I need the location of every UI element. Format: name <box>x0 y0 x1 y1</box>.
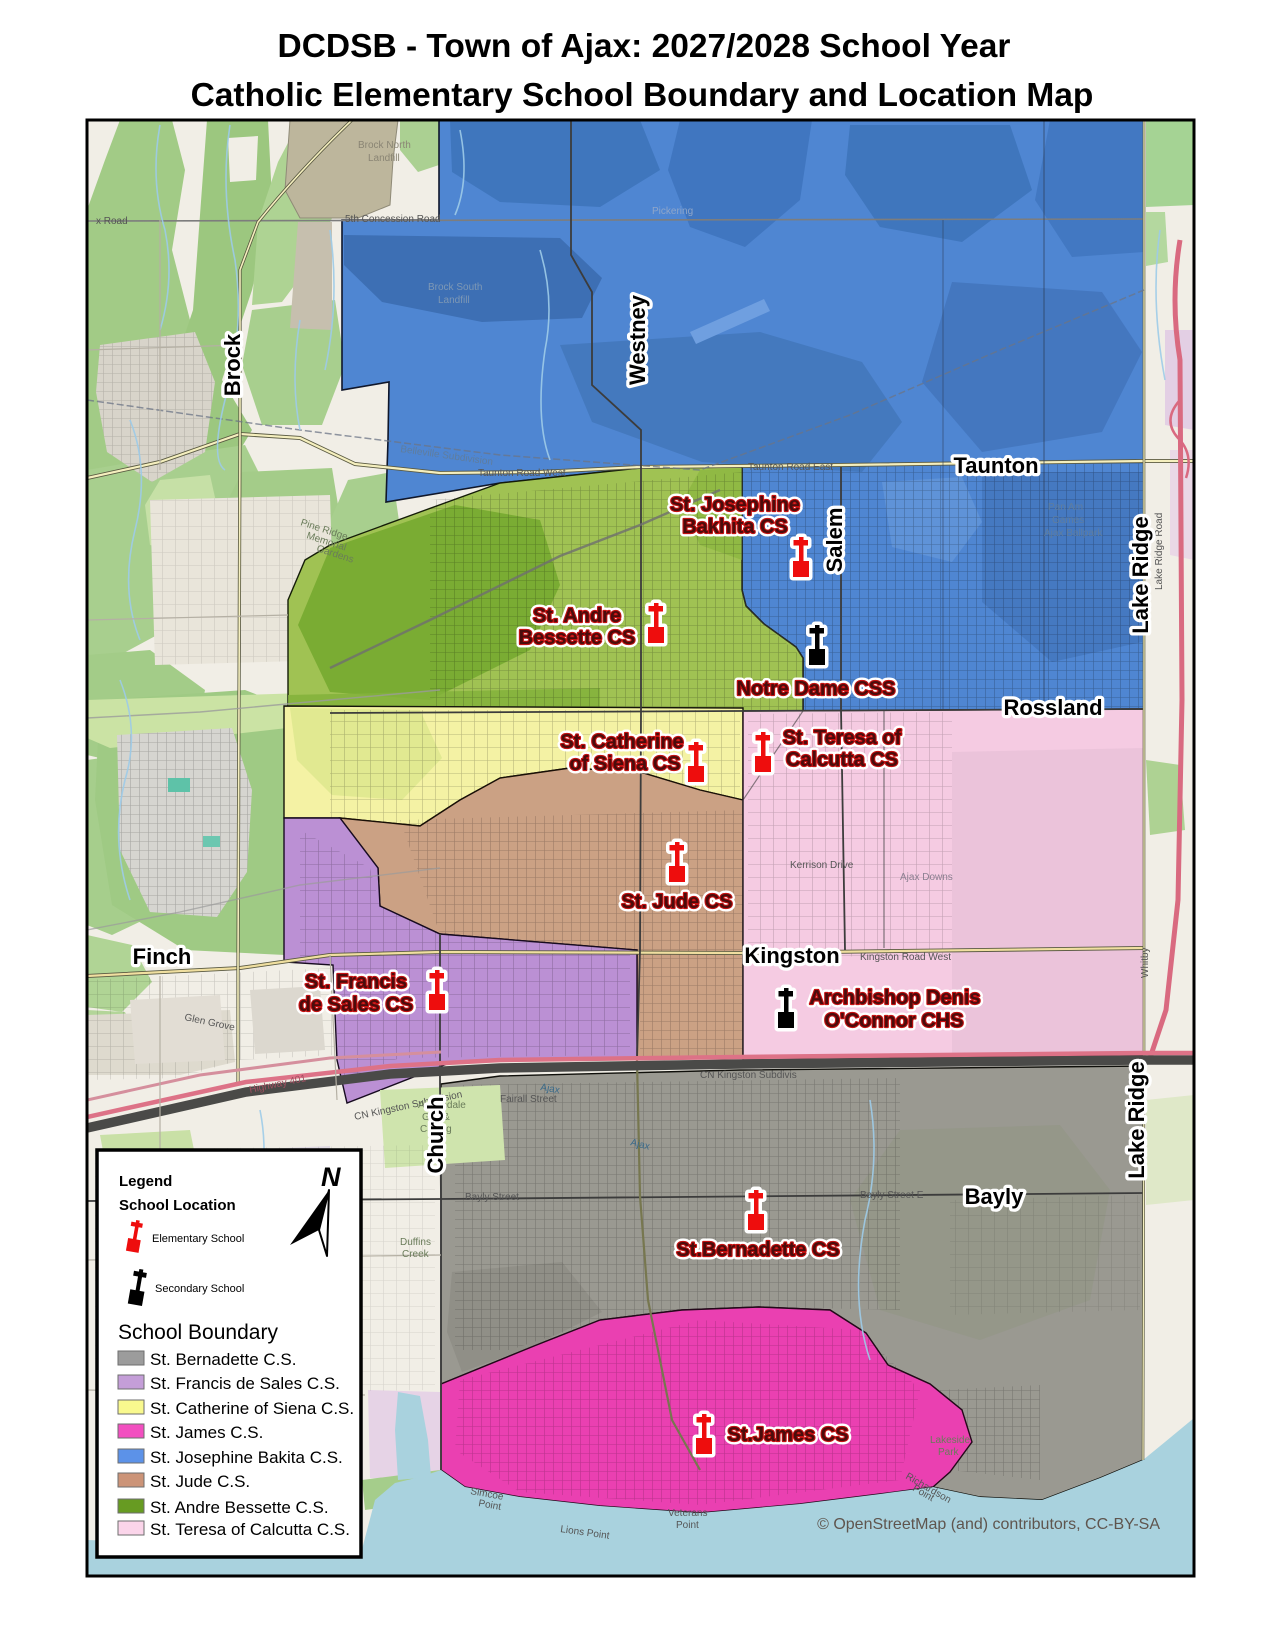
svg-text:Archbishop Denis: Archbishop Denis <box>809 987 980 1009</box>
svg-text:Point: Point <box>676 1520 699 1531</box>
svg-text:St. Jude C.S.: St. Jude C.S. <box>150 1472 250 1491</box>
svg-text:Creek: Creek <box>402 1249 430 1260</box>
svg-text:Pickering: Pickering <box>652 206 693 217</box>
svg-text:Taunton: Taunton <box>953 453 1038 478</box>
svg-text:St. Catherine of Siena C.S.: St. Catherine of Siena C.S. <box>150 1399 354 1418</box>
svg-text:Catholic Elementary School Bou: Catholic Elementary School Boundary and … <box>191 77 1094 114</box>
svg-text:© OpenStreetMap (and) contribu: © OpenStreetMap (and) contributors, CC-B… <box>817 1516 1160 1533</box>
svg-text:Brock South: Brock South <box>428 282 482 293</box>
svg-text:Secondary School: Secondary School <box>155 1283 244 1295</box>
svg-text:Legend: Legend <box>119 1173 172 1190</box>
svg-text:Salem: Salem <box>822 508 847 573</box>
svg-text:Pan Am: Pan Am <box>1048 502 1083 513</box>
svg-text:Taunton Road East: Taunton Road East <box>748 462 833 473</box>
svg-text:Notre Dame CSS: Notre Dame CSS <box>737 678 896 700</box>
svg-text:Rossland: Rossland <box>1003 695 1102 720</box>
svg-text:Finch: Finch <box>133 944 192 969</box>
svg-text:St. Andre: St. Andre <box>533 605 621 627</box>
svg-text:School Location: School Location <box>119 1197 236 1214</box>
svg-text:5th Concession Road: 5th Concession Road <box>345 214 441 225</box>
svg-text:Bessette CS: Bessette CS <box>519 627 636 649</box>
svg-text:CN Kingston Subdivis: CN Kingston Subdivis <box>700 1070 797 1081</box>
svg-text:of Siena CS: of Siena CS <box>569 753 680 775</box>
svg-text:Lake Ridge: Lake Ridge <box>1124 1061 1149 1178</box>
svg-text:St. Teresa of: St. Teresa of <box>783 727 902 749</box>
svg-text:Whitby: Whitby <box>1140 947 1151 978</box>
svg-text:Lake Ridge: Lake Ridge <box>1128 516 1153 633</box>
svg-text:St. Catherine: St. Catherine <box>560 731 683 753</box>
svg-text:Kerrison Drive: Kerrison Drive <box>790 860 854 871</box>
svg-text:Ajax Downs: Ajax Downs <box>900 872 953 883</box>
svg-text:Duffins: Duffins <box>400 1237 431 1248</box>
svg-text:Bayly Street E: Bayly Street E <box>860 1190 924 1201</box>
svg-text:St.Bernadette CS: St.Bernadette CS <box>676 1239 839 1261</box>
svg-text:Church: Church <box>423 1097 448 1174</box>
svg-text:N: N <box>321 1162 341 1192</box>
svg-text:Veterans: Veterans <box>668 1508 707 1519</box>
svg-text:de Sales CS: de Sales CS <box>299 994 414 1016</box>
svg-text:Bakhita CS: Bakhita CS <box>682 516 788 538</box>
svg-text:Calcutta CS: Calcutta CS <box>786 749 898 771</box>
svg-text:x Road: x Road <box>96 216 128 227</box>
svg-text:St. Jude CS: St. Jude CS <box>621 891 732 913</box>
svg-text:DCDSB - Town of Ajax: 2027/202: DCDSB - Town of Ajax: 2027/2028 School Y… <box>278 28 1011 65</box>
svg-text:Kingston: Kingston <box>744 943 839 968</box>
svg-text:Landfill: Landfill <box>368 153 400 164</box>
svg-text:Games: Games <box>1052 515 1084 526</box>
svg-text:St. Andre Bessette C.S.: St. Andre Bessette C.S. <box>150 1498 329 1517</box>
svg-text:Fairall Street: Fairall Street <box>500 1094 557 1105</box>
svg-text:Brock North: Brock North <box>358 140 411 151</box>
svg-text:St. Francis de Sales C.S.: St. Francis de Sales C.S. <box>150 1374 340 1393</box>
svg-text:O'Connor CHS: O'Connor CHS <box>824 1010 963 1032</box>
svg-text:St. Josephine Bakita C.S.: St. Josephine Bakita C.S. <box>150 1448 343 1467</box>
svg-text:Park: Park <box>938 1447 960 1458</box>
svg-text:Brock: Brock <box>220 333 245 396</box>
svg-text:St. Francis: St. Francis <box>305 971 407 993</box>
svg-text:Landfill: Landfill <box>438 295 470 306</box>
svg-text:Bayly Street: Bayly Street <box>465 1192 519 1203</box>
svg-text:Lake Ridge Road: Lake Ridge Road <box>1154 513 1165 590</box>
svg-text:St. Teresa of Calcutta C.S.: St. Teresa of Calcutta C.S. <box>150 1520 350 1539</box>
svg-text:St. Josephine: St. Josephine <box>670 494 800 516</box>
svg-text:Ajax Ballpark: Ajax Ballpark <box>1044 528 1103 539</box>
svg-text:Elementary School: Elementary School <box>152 1233 244 1245</box>
svg-text:St. Bernadette C.S.: St. Bernadette C.S. <box>150 1350 296 1369</box>
svg-text:Lakeside: Lakeside <box>930 1435 970 1446</box>
svg-text:Westney: Westney <box>625 294 650 385</box>
svg-text:Kingston Road West: Kingston Road West <box>860 952 951 963</box>
svg-text:Bayly: Bayly <box>965 1184 1024 1209</box>
svg-text:Taunton Road West: Taunton Road West <box>478 468 566 479</box>
svg-text:School Boundary: School Boundary <box>118 1321 278 1344</box>
svg-text:St. James C.S.: St. James C.S. <box>150 1423 263 1442</box>
svg-text:St.James CS: St.James CS <box>727 1424 848 1446</box>
